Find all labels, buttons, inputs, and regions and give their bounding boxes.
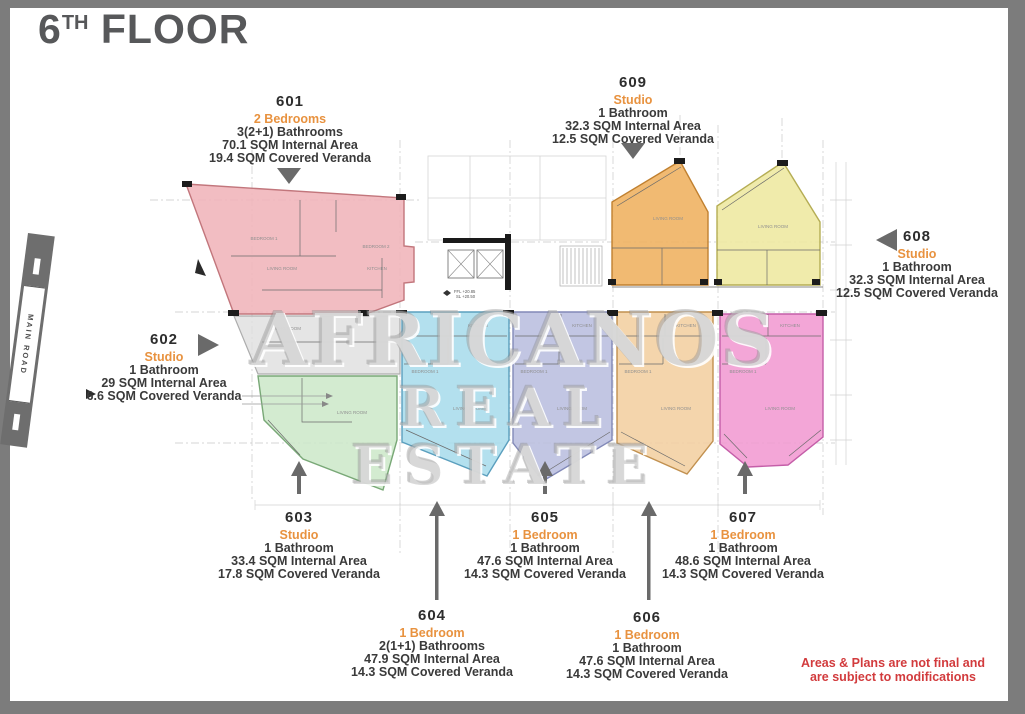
- floorplan-page: { "title": { "number": "6", "suffix": "T…: [0, 0, 1025, 714]
- unit-number: 602: [87, 331, 242, 348]
- unit-601-arrow: [277, 168, 301, 184]
- unit-603-label: 603 Studio 1 Bathroom 33.4 SQM Internal …: [218, 509, 380, 581]
- unit-veranda: 12.5 SQM Covered Veranda: [552, 133, 714, 146]
- road-label: MAIN ROAD: [18, 313, 35, 375]
- svg-text:LIVING ROOM: LIVING ROOM: [337, 410, 367, 415]
- svg-text:BEDROOM 1: BEDROOM 1: [520, 369, 548, 374]
- svg-text:KITCHEN: KITCHEN: [468, 323, 488, 328]
- svg-text:KITCHEN: KITCHEN: [572, 323, 592, 328]
- staircase: [560, 246, 602, 286]
- floor-level-marker: FFL +20.85 SL +20.50: [443, 289, 476, 299]
- unit-606-arrow: [641, 501, 657, 600]
- unit-607-region: [720, 314, 823, 467]
- unit-608-label: 608 Studio 1 Bathroom 32.3 SQM Internal …: [836, 228, 998, 300]
- unit-number: 603: [218, 509, 380, 526]
- svg-text:KITCHEN: KITCHEN: [780, 323, 800, 328]
- title-suffix: TH: [62, 12, 89, 34]
- unit-veranda: 14.3 SQM Covered Veranda: [351, 666, 513, 679]
- svg-text:LIVING ROOM: LIVING ROOM: [267, 266, 297, 271]
- unit-609-region: [612, 161, 708, 285]
- svg-text:LIVING ROOM: LIVING ROOM: [557, 406, 587, 411]
- svg-text:BEDROOM 1: BEDROOM 1: [411, 369, 439, 374]
- unit-number: 607: [662, 509, 824, 526]
- unit-605-label: 605 1 Bedroom 1 Bathroom 47.6 SQM Intern…: [464, 509, 626, 581]
- unit-601-region: [186, 184, 414, 314]
- svg-text:BEDROOM 1: BEDROOM 1: [729, 369, 757, 374]
- svg-text:BEDROOM 1: BEDROOM 1: [250, 236, 278, 241]
- unit-604-label: 604 1 Bedroom 2(1+1) Bathrooms 47.9 SQM …: [351, 607, 513, 679]
- unit-veranda: 12.5 SQM Covered Veranda: [836, 287, 998, 300]
- disclaimer-line1: Areas & Plans are not final and: [783, 656, 1003, 670]
- unit-veranda: 14.3 SQM Covered Veranda: [566, 668, 728, 681]
- unit-601-label: 601 2 Bedrooms 3(2+1) Bathrooms 70.1 SQM…: [209, 93, 371, 165]
- unit-606-region: [617, 312, 713, 474]
- svg-text:LIVING ROOM: LIVING ROOM: [271, 326, 301, 331]
- unit-607-label: 607 1 Bedroom 1 Bathroom 48.6 SQM Intern…: [662, 509, 824, 581]
- svg-text:KITCHEN: KITCHEN: [367, 266, 387, 271]
- svg-text:BEDROOM 1: BEDROOM 1: [624, 369, 652, 374]
- unit-609-label: 609 Studio 1 Bathroom 32.3 SQM Internal …: [552, 74, 714, 146]
- unit-number: 601: [209, 93, 371, 110]
- unit-number: 604: [351, 607, 513, 624]
- svg-text:LIVING ROOM: LIVING ROOM: [453, 406, 483, 411]
- unit-605-region: [513, 312, 612, 481]
- svg-text:BEDROOM 2: BEDROOM 2: [362, 244, 390, 249]
- svg-text:LIVING ROOM: LIVING ROOM: [758, 224, 788, 229]
- unit-number: 608: [836, 228, 998, 245]
- title-number: 6: [38, 6, 62, 52]
- unit-veranda: 14.3 SQM Covered Veranda: [662, 568, 824, 581]
- page-title: 6TH FLOOR: [38, 6, 249, 53]
- unit-604-region: [402, 312, 509, 476]
- unit-number: 606: [566, 609, 728, 626]
- elevator-core: [443, 234, 511, 290]
- disclaimer-line2: are subject to modifications: [783, 670, 1003, 684]
- svg-text:SL +20.50: SL +20.50: [456, 294, 476, 299]
- road-lane-dash: [12, 414, 20, 431]
- unit-604-arrow: [429, 501, 445, 600]
- unit-number: 609: [552, 74, 714, 91]
- unit-603-region: [258, 376, 397, 490]
- svg-text:LIVING ROOM: LIVING ROOM: [661, 406, 691, 411]
- unit-veranda: 6.6 SQM Covered Veranda: [87, 390, 242, 403]
- unit-number: 605: [464, 509, 626, 526]
- svg-text:LIVING ROOM: LIVING ROOM: [653, 216, 683, 221]
- upper-core-outline: [428, 156, 606, 240]
- road-lane-dash: [33, 258, 41, 275]
- title-word: FLOOR: [101, 6, 249, 52]
- disclaimer-note: Areas & Plans are not final and are subj…: [783, 656, 1003, 684]
- svg-text:LIVING ROOM: LIVING ROOM: [765, 406, 795, 411]
- unit-veranda: 14.3 SQM Covered Veranda: [464, 568, 626, 581]
- unit-veranda: 19.4 SQM Covered Veranda: [209, 152, 371, 165]
- unit-603-arrow: [291, 461, 307, 494]
- unit-veranda: 17.8 SQM Covered Veranda: [218, 568, 380, 581]
- svg-text:KITCHEN: KITCHEN: [676, 323, 696, 328]
- unit-606-label: 606 1 Bedroom 1 Bathroom 47.6 SQM Intern…: [566, 609, 728, 681]
- unit-602-label: 602 Studio 1 Bathroom 29 SQM Internal Ar…: [87, 331, 242, 403]
- unit-602-region: [234, 316, 400, 374]
